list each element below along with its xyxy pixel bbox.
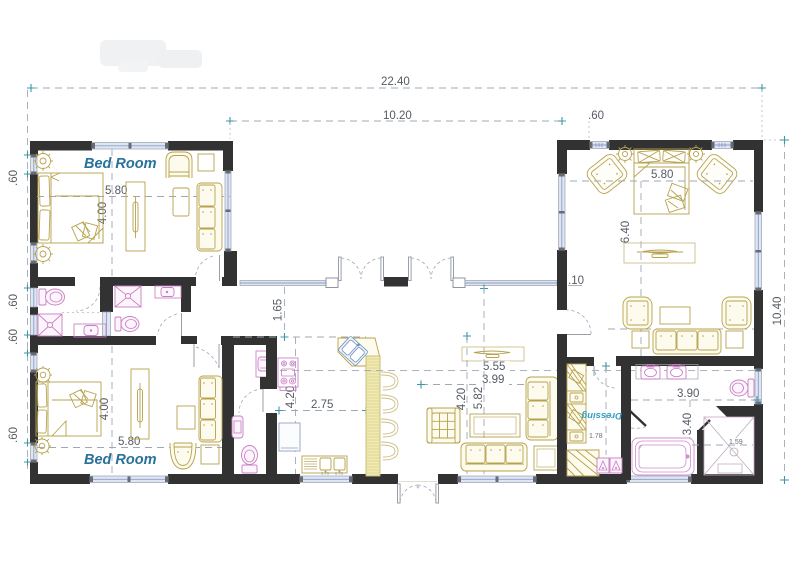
svg-text:6.40: 6.40 bbox=[620, 221, 632, 243]
svg-text:3.99: 3.99 bbox=[482, 374, 504, 386]
svg-text:0.70: 0.70 bbox=[321, 471, 330, 476]
svg-text:3.90: 3.90 bbox=[677, 388, 699, 400]
svg-text:5.80: 5.80 bbox=[651, 169, 673, 181]
svg-text:2.75: 2.75 bbox=[311, 399, 333, 411]
svg-text:.60: .60 bbox=[8, 329, 20, 345]
svg-text:0.70: 0.70 bbox=[335, 471, 344, 476]
svg-text:.60: .60 bbox=[8, 170, 20, 186]
svg-text:5.80: 5.80 bbox=[118, 436, 140, 448]
svg-text:.60: .60 bbox=[8, 294, 20, 310]
svg-text:.60: .60 bbox=[588, 110, 604, 122]
svg-text:Dressing: Dressing bbox=[581, 410, 622, 421]
svg-text:Bed Room: Bed Room bbox=[84, 452, 157, 468]
svg-text:.60: .60 bbox=[8, 427, 20, 443]
svg-text:10.20: 10.20 bbox=[383, 110, 412, 122]
svg-text:4.20: 4.20 bbox=[285, 386, 297, 408]
svg-text:5.80: 5.80 bbox=[105, 185, 127, 197]
svg-text:5.55: 5.55 bbox=[483, 361, 505, 373]
svg-text:4.20: 4.20 bbox=[456, 388, 468, 410]
svg-text:1.65: 1.65 bbox=[273, 299, 285, 321]
svg-text:10.40: 10.40 bbox=[772, 297, 784, 326]
svg-text:22.40: 22.40 bbox=[381, 76, 410, 88]
svg-text:3.40: 3.40 bbox=[682, 413, 694, 435]
svg-text:5.82: 5.82 bbox=[473, 387, 485, 409]
svg-text:Bed Room: Bed Room bbox=[84, 156, 157, 172]
svg-text:1.78: 1.78 bbox=[589, 433, 603, 440]
